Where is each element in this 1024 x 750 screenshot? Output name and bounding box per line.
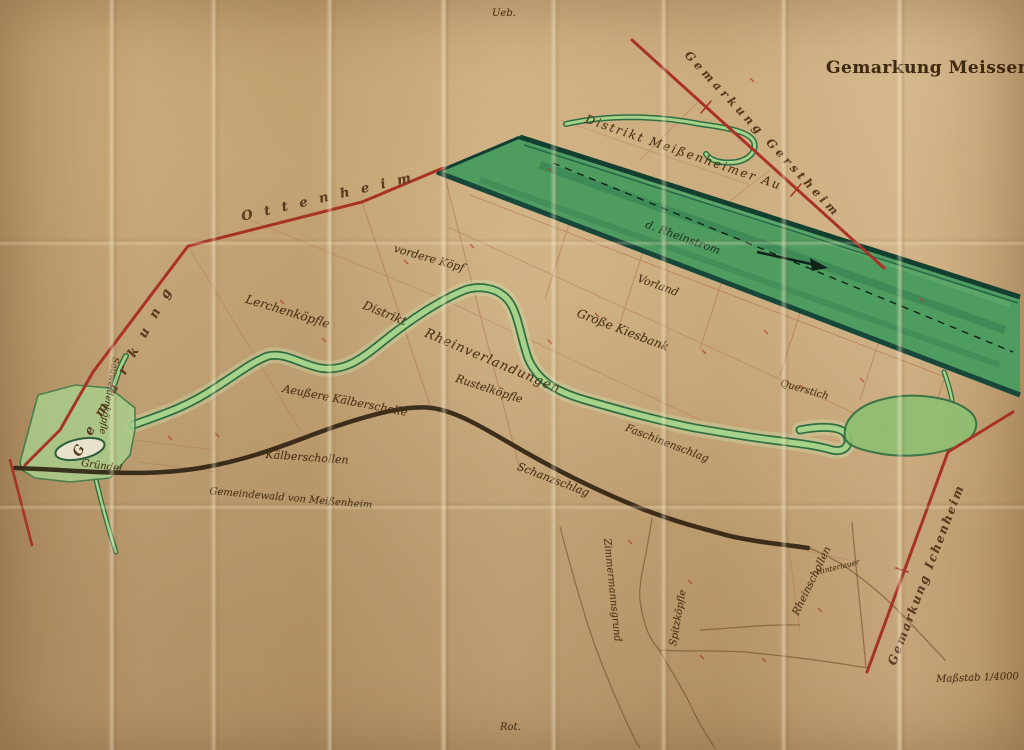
sheet-note-top: Ueb. [492, 8, 516, 19]
sheet-note-bottom: Rot. [500, 722, 521, 733]
map-title: Gemarkung Meissenheim [826, 58, 1024, 78]
historical-map: Gemarkung Meissenheim Gemarkung Ottenhei… [0, 0, 1024, 750]
boundary-lines [10, 40, 1013, 672]
